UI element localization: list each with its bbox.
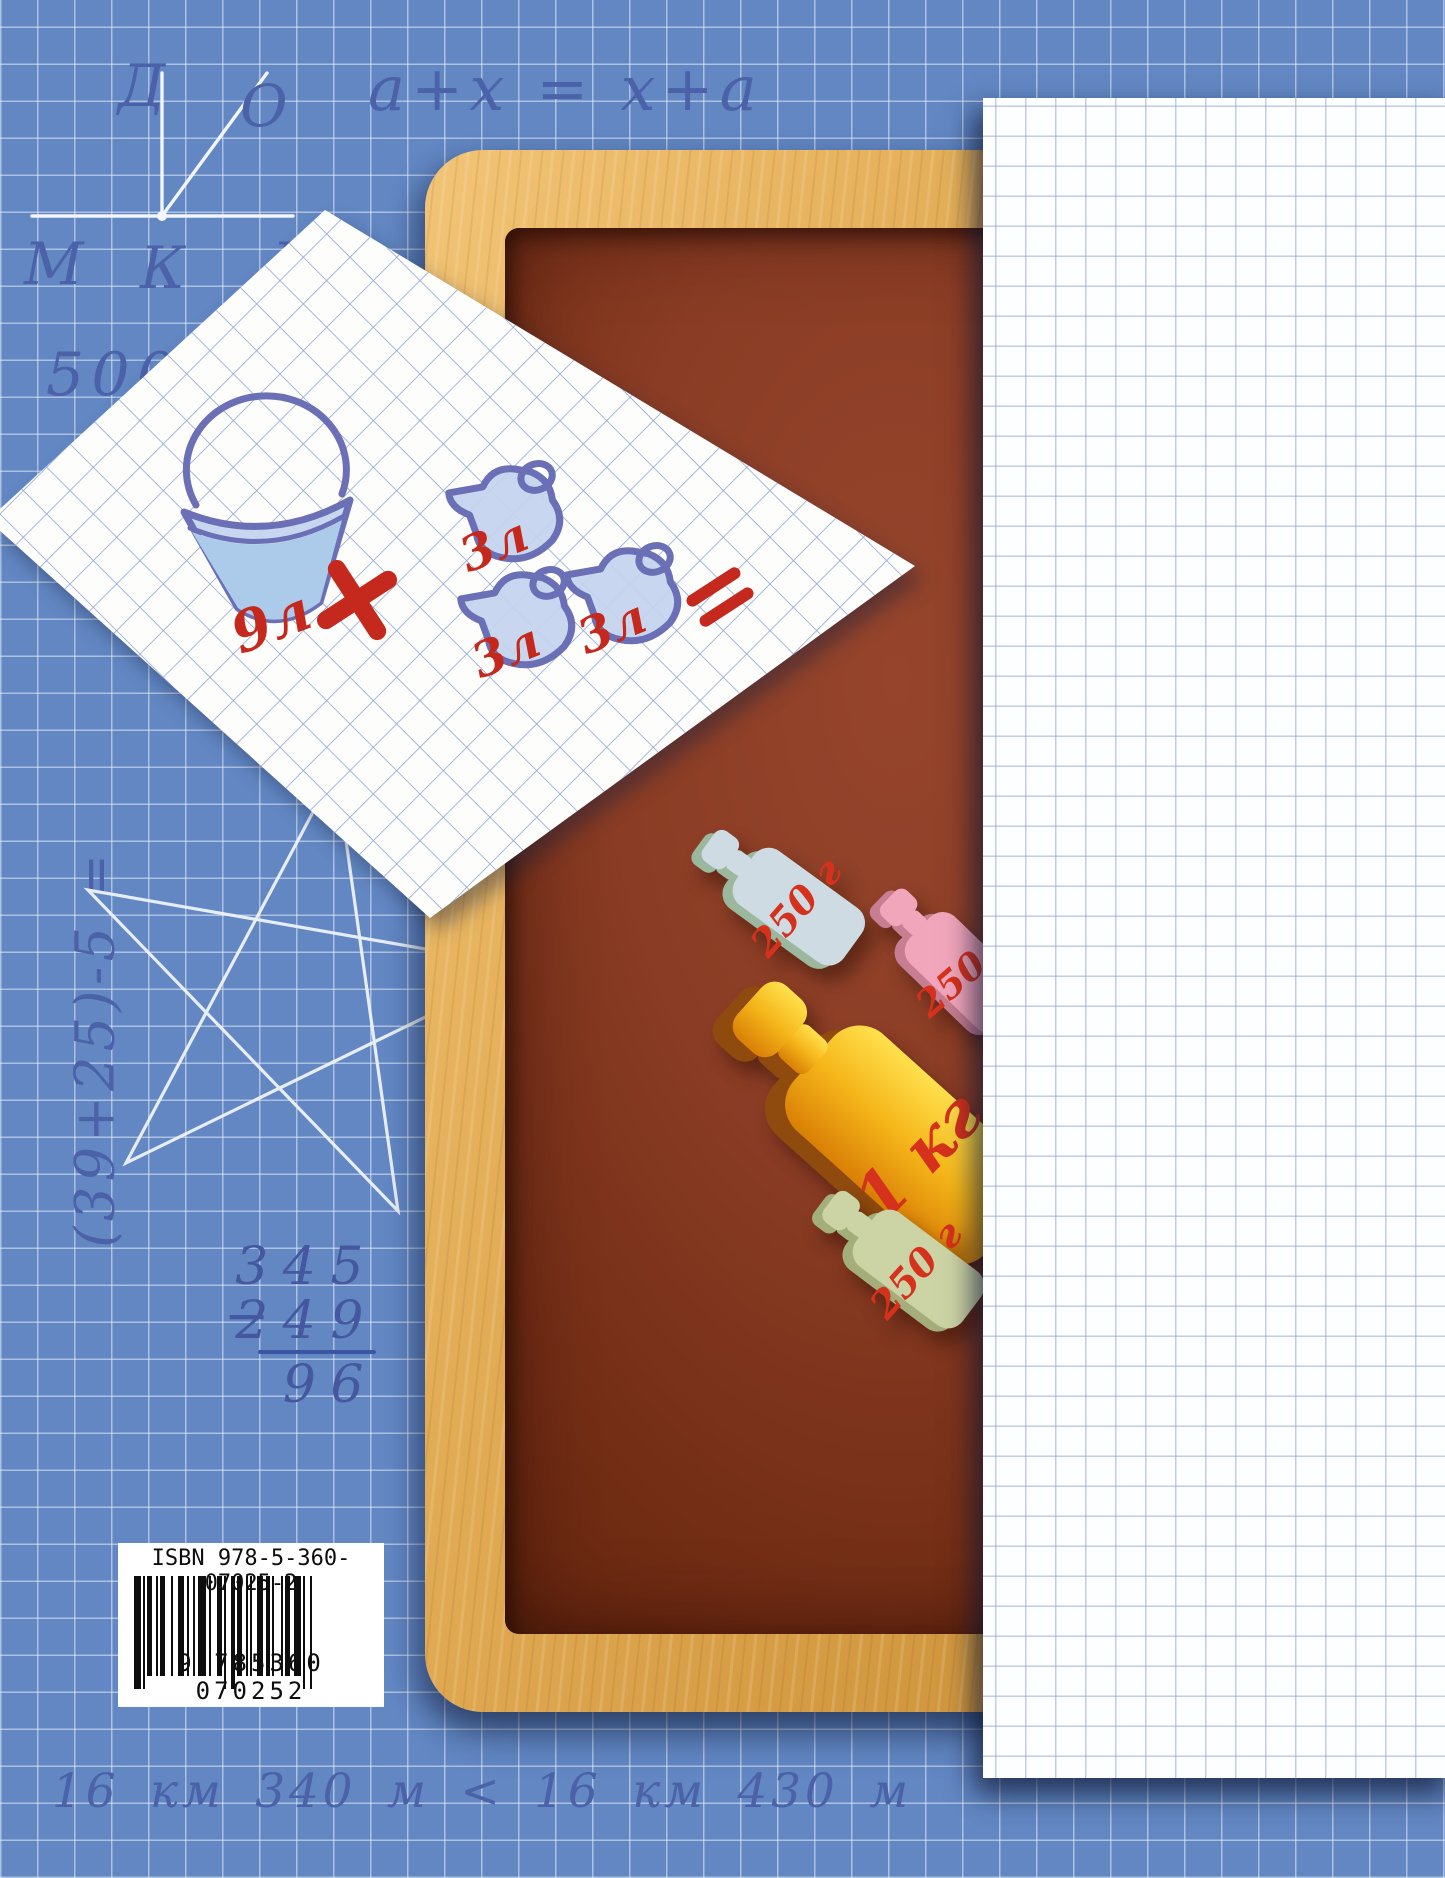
- book-back-cover: Д О М К В a+x = x+a 500 < 900 (39+25)-5 …: [0, 0, 1445, 1878]
- squared-paper-strip: [983, 98, 1445, 1778]
- barcode-block: ISBN 978-5-360-07025-2 9 785360 070252: [118, 1543, 384, 1707]
- jug-drawing: [11, 12, 116, 103]
- barcode-digits: 9 785360 070252: [118, 1649, 384, 1705]
- paper-sheet-grid: [0, 210, 915, 918]
